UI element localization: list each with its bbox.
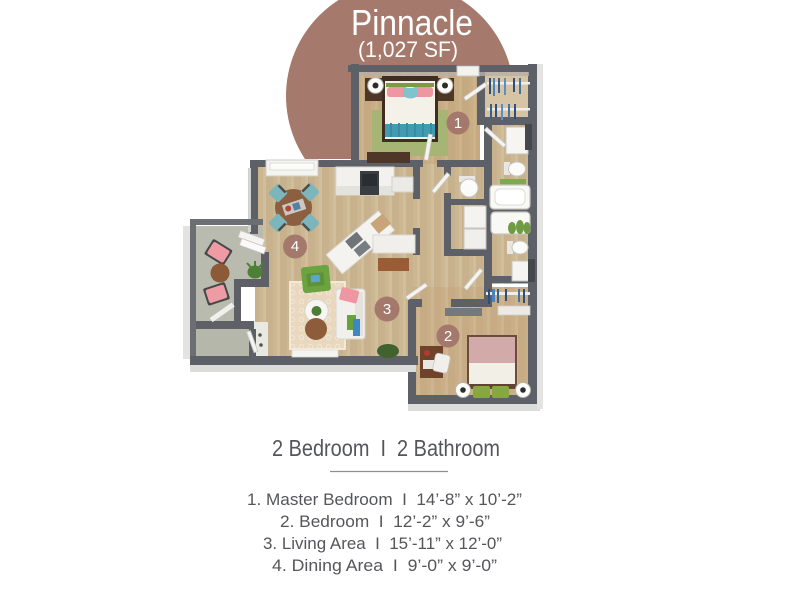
svg-text:4. Dining Area I 9’-0” x 9’-: 4. Dining Area I 9’-0” x 9’-0” (272, 556, 497, 575)
svg-text:4: 4 (291, 238, 299, 255)
svg-text:2: 2 (444, 328, 452, 345)
svg-text:(1,027 SF): (1,027 SF) (358, 37, 458, 62)
svg-text:1. Master Bedroom I 14’-8” x: 1. Master Bedroom I 14’-8” x 10’-2” (247, 490, 522, 509)
svg-text:1: 1 (454, 115, 462, 132)
svg-text:2 Bedroom I 2 Bathroom: 2 Bedroom I 2 Bathroom (272, 435, 500, 461)
svg-text:3: 3 (383, 301, 391, 318)
svg-text:2. Bedroom I 12’-2” x 9’-6”: 2. Bedroom I 12’-2” x 9’-6” (280, 512, 490, 531)
svg-text:3. Living Area I 15’-11” x 1: 3. Living Area I 15’-11” x 12’-0” (263, 534, 502, 553)
